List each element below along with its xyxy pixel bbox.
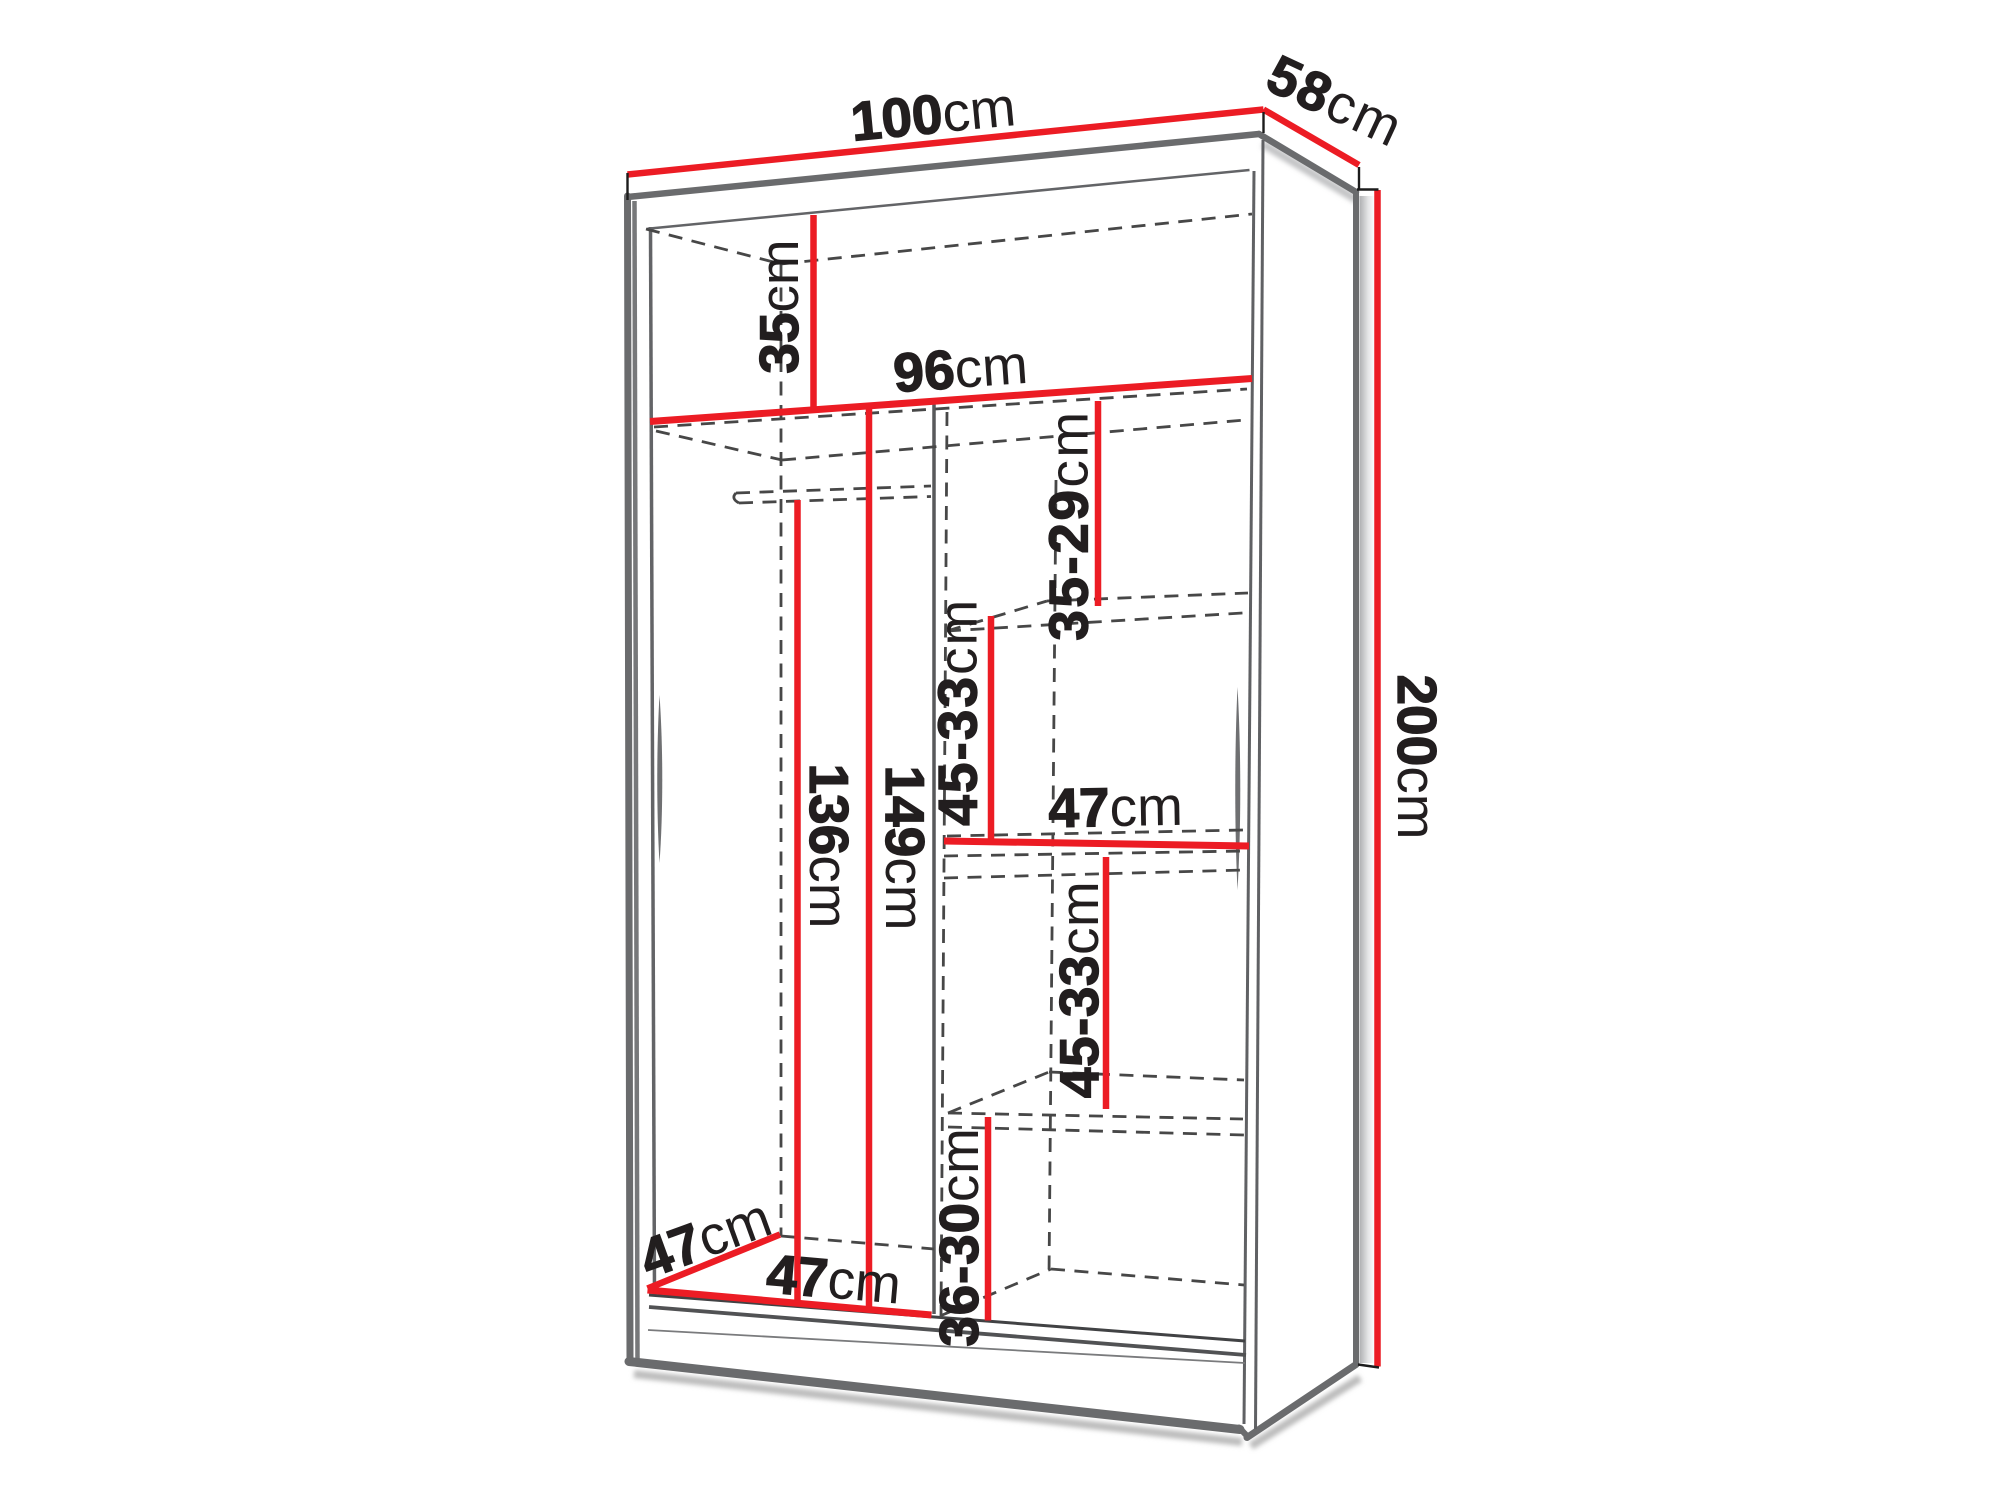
svg-text:136cm: 136cm [798, 763, 860, 928]
svg-text:47cm: 47cm [1048, 775, 1184, 839]
svg-text:36-30cm: 36-30cm [928, 1127, 990, 1347]
svg-text:47cm: 47cm [764, 1242, 903, 1315]
svg-text:35cm: 35cm [748, 239, 810, 374]
svg-text:45-33cm: 45-33cm [1048, 881, 1110, 1099]
svg-text:45-33cm: 45-33cm [927, 598, 989, 826]
svg-text:200cm: 200cm [1386, 674, 1448, 839]
svg-text:35-29cm: 35-29cm [1038, 409, 1100, 641]
svg-text:96cm: 96cm [891, 333, 1030, 404]
